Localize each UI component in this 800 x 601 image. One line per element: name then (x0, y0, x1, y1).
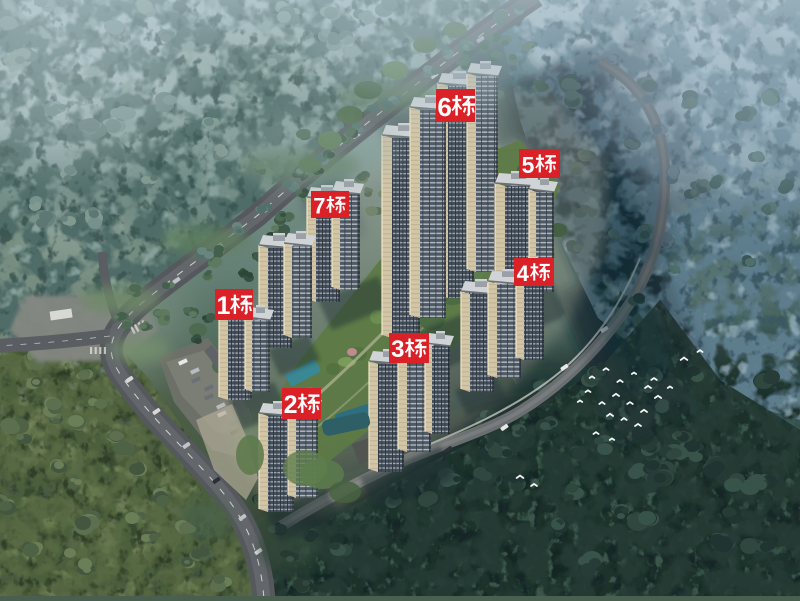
svg-text:1: 1 (216, 292, 230, 320)
svg-text:3: 3 (391, 336, 404, 363)
svg-text:2: 2 (284, 391, 298, 419)
svg-text:5: 5 (522, 152, 535, 178)
svg-text:6: 6 (437, 92, 451, 122)
svg-text:7: 7 (313, 193, 325, 218)
svg-text:4: 4 (517, 261, 530, 286)
